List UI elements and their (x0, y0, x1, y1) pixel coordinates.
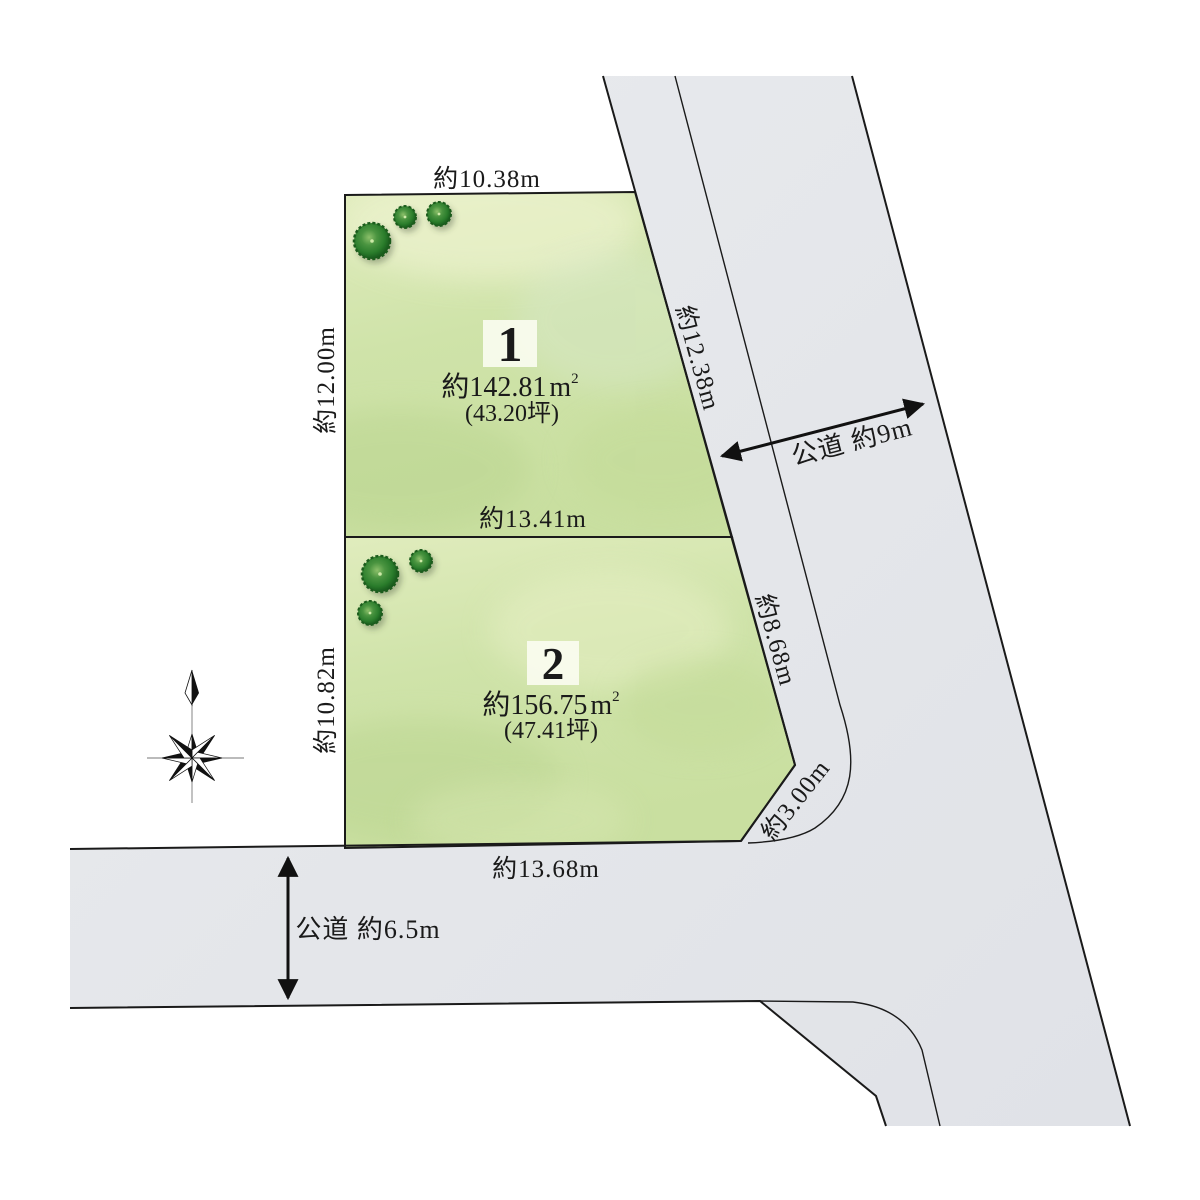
dim-parcel2-bottom: 約13.68m (492, 855, 600, 883)
tree-icon (358, 601, 382, 625)
parcel-2-area: 約156.75m2 (482, 689, 619, 721)
site-plan-diagram: 1 約142.81m2 (43.20坪) 2 約156.75m2 (47.41坪… (0, 0, 1200, 1200)
parcel-2-area-tsubo: (47.41坪) (504, 717, 598, 744)
parcel-1-area: 約142.81m2 (441, 371, 578, 403)
road-bottom-label: 公道 約6.5m (295, 915, 440, 944)
dim-parcel1-left: 約12.00m (312, 326, 340, 434)
dim-parcel1-top: 約10.38m (433, 165, 541, 193)
tree-icon (354, 223, 390, 259)
parcel-1-area-tsubo: (43.20坪) (465, 400, 559, 427)
tree-icon (362, 556, 398, 592)
parcel-1-number: 1 (498, 316, 523, 372)
tree-icon (394, 206, 416, 228)
site-plan-svg: 1 約142.81m2 (43.20坪) 2 約156.75m2 (47.41坪… (0, 0, 1200, 1200)
compass-icon (147, 670, 244, 803)
tree-icon (410, 550, 432, 572)
bottom-road-bottom-edge (70, 1001, 886, 1126)
tree-icon (427, 202, 451, 226)
dim-parcel1-bottom: 約13.41m (479, 505, 587, 533)
parcel-2-number: 2 (542, 639, 565, 689)
dim-parcel2-left: 約10.82m (312, 646, 340, 754)
